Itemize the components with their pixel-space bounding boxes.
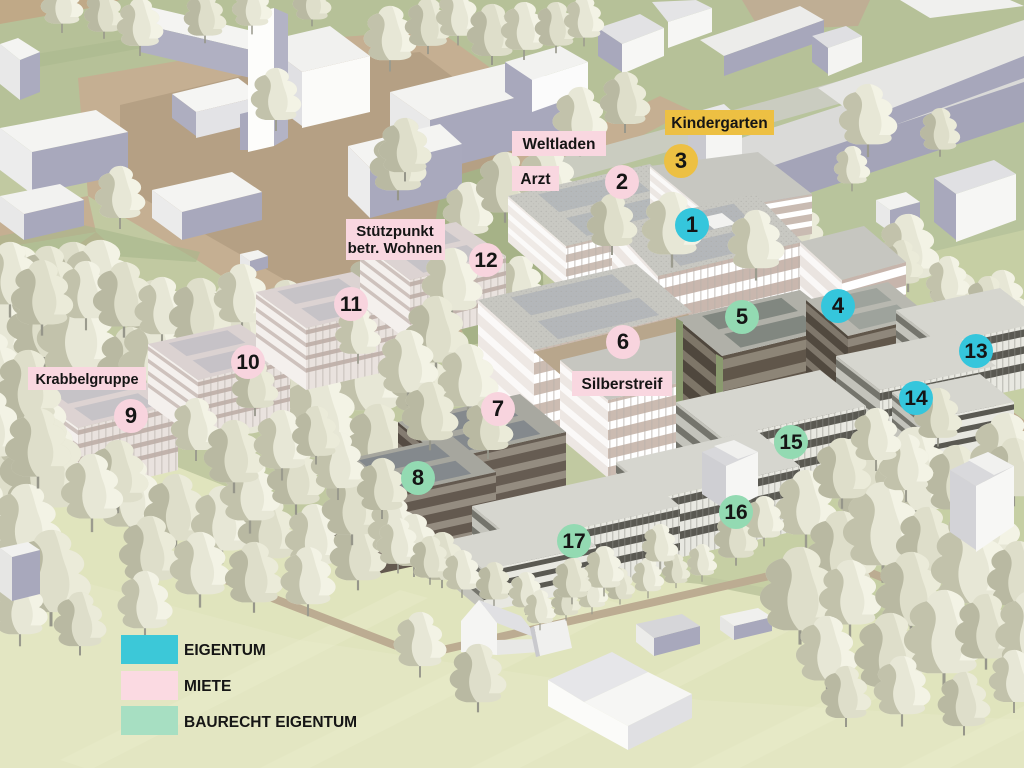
svg-text:3: 3 (675, 148, 687, 173)
svg-text:17: 17 (562, 530, 585, 553)
svg-text:16: 16 (724, 501, 747, 524)
svg-text:2: 2 (616, 169, 628, 194)
svg-text:Weltladen: Weltladen (523, 136, 596, 153)
svg-text:9: 9 (125, 403, 137, 428)
svg-text:Stützpunkt: Stützpunkt (356, 223, 433, 240)
svg-text:Kindergarten: Kindergarten (671, 115, 767, 132)
svg-text:Arzt: Arzt (520, 171, 550, 188)
svg-text:10: 10 (236, 351, 259, 374)
svg-text:MIETE: MIETE (184, 678, 231, 695)
svg-text:6: 6 (617, 329, 629, 354)
svg-text:7: 7 (492, 396, 504, 421)
svg-text:5: 5 (736, 304, 748, 329)
svg-text:4: 4 (832, 293, 845, 318)
svg-text:BAURECHT EIGENTUM: BAURECHT EIGENTUM (184, 714, 357, 731)
svg-text:betr. Wohnen: betr. Wohnen (348, 240, 443, 257)
svg-text:12: 12 (474, 249, 497, 272)
svg-text:14: 14 (904, 387, 928, 410)
svg-text:1: 1 (686, 212, 698, 237)
svg-text:11: 11 (340, 293, 363, 316)
svg-text:8: 8 (412, 465, 424, 490)
svg-text:Krabbelgruppe: Krabbelgruppe (35, 372, 138, 388)
svg-text:15: 15 (779, 431, 803, 454)
svg-text:13: 13 (964, 340, 987, 363)
svg-text:Silberstreif: Silberstreif (582, 376, 664, 393)
svg-text:EIGENTUM: EIGENTUM (184, 642, 266, 659)
